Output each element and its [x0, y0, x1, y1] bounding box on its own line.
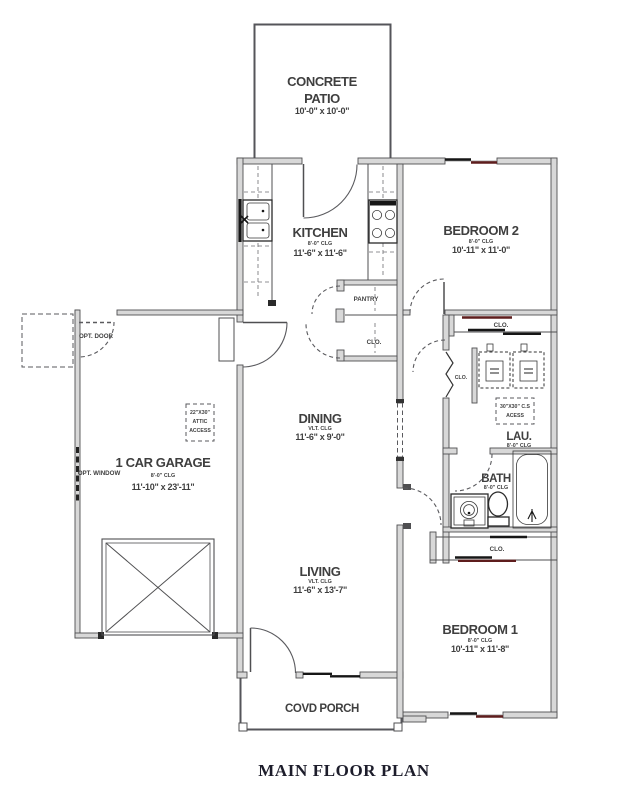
coat-closet-door-arc: [306, 324, 340, 358]
attic-access-line3: ACCESS: [189, 428, 211, 434]
kitchen-sink: [241, 200, 272, 241]
opt-door-label: OPT. DOOR: [79, 333, 114, 340]
kitchen-range: [369, 200, 397, 243]
bedroom1-label: BEDROOM 1: [442, 622, 517, 637]
opt-window-label: OPT. WINDOW: [78, 470, 121, 477]
dining-dims: 11'-6" x 9'-0": [295, 432, 344, 442]
optional-garage-door: [22, 314, 114, 367]
cs-access-line2: ACESS: [506, 413, 524, 419]
dining-label: DINING: [298, 411, 341, 426]
garage-dims: 11'-10" x 23'-11": [132, 482, 195, 492]
kitchen-label: KITCHEN: [293, 225, 348, 240]
dryer-valve-icon: [521, 344, 527, 351]
bedroom2-door: [410, 279, 444, 314]
living-dims: 11'-6" x 13'-7": [293, 585, 347, 595]
cs-access-line1: 30"X30" C.S: [500, 404, 531, 410]
plan-title: MAIN FLOOR PLAN: [258, 761, 430, 780]
bedroom1-dims: 10'-11" x 11'-8": [451, 644, 509, 654]
bedroom1-window: [448, 714, 503, 717]
room-labels: CONCRETE PATIO 10'-0" x 10'-0" KITCHEN 8…: [116, 74, 532, 715]
bathtub: [513, 451, 551, 528]
porch-post-left: [239, 723, 247, 731]
living-window: [303, 674, 360, 677]
tub-faucet-icon: [528, 509, 536, 522]
kitchen-dims: 11'-6" x 11'-6": [293, 248, 346, 258]
linen-closet-bifold: [446, 352, 453, 397]
garage-house-door: [219, 318, 287, 367]
bedroom1-door-arc: [404, 488, 441, 525]
garage-clg: 8'-0" CLG: [151, 473, 176, 479]
garage-door-box: [102, 539, 214, 635]
living-label: LIVING: [300, 564, 341, 579]
bedroom2-window: [445, 160, 497, 163]
porch-right-wall-stub: [403, 716, 426, 722]
bedroom2-label: BEDROOM 2: [443, 223, 518, 238]
bath-clg: 8'-0" CLG: [484, 485, 509, 491]
bath-vanity: [451, 494, 488, 528]
crawl-space-access-box: [496, 398, 534, 424]
dryer: [513, 344, 544, 388]
patio-kitchen-door: [304, 164, 358, 218]
bath-label: BATH: [481, 473, 511, 485]
attic-access-line1: 22"X30": [190, 410, 210, 416]
patio-label-line1: CONCRETE: [287, 74, 357, 89]
patio-label-line2: PATIO: [304, 91, 340, 106]
washer: [479, 344, 510, 388]
cased-opening-dining-hall: [396, 399, 404, 461]
bedroom1-closet-label: CLO.: [490, 546, 505, 553]
front-door: [251, 628, 296, 673]
floor-plan-drawing: CONCRETE PATIO 10'-0" x 10'-0" KITCHEN 8…: [0, 0, 640, 794]
attic-access-line2: ATTIC: [193, 419, 208, 425]
coat-closet-label: CLO.: [367, 339, 382, 346]
patio-dims: 10'-0" x 10'-0": [295, 106, 349, 116]
linen-closet-label: CLO.: [455, 375, 468, 381]
toilet: [488, 492, 509, 526]
laundry-clg: 8'-0" CLG: [507, 443, 532, 449]
bedroom2-dims: 10'-11" x 11'-0": [452, 245, 510, 255]
kitchen-clg: 8'-0" CLG: [308, 241, 333, 247]
washer-valve-icon: [487, 344, 493, 351]
garage-label: 1 CAR GARAGE: [116, 455, 212, 470]
bedroom1-door-jamb-bottom: [403, 523, 411, 529]
floor-plan-sheet: CONCRETE PATIO 10'-0" x 10'-0" KITCHEN 8…: [0, 0, 640, 794]
optional-door-stoop: [22, 314, 73, 367]
bedroom2-closet-label: CLO.: [494, 322, 509, 329]
bedroom1-door-jamb-top: [403, 484, 411, 490]
laundry-label: LAU.: [506, 431, 531, 443]
porch-post-right: [394, 723, 402, 731]
pantry-label: PANTRY: [354, 296, 380, 303]
porch-label: COVD PORCH: [285, 703, 359, 715]
hall-laundry-door-arc: [413, 340, 445, 372]
